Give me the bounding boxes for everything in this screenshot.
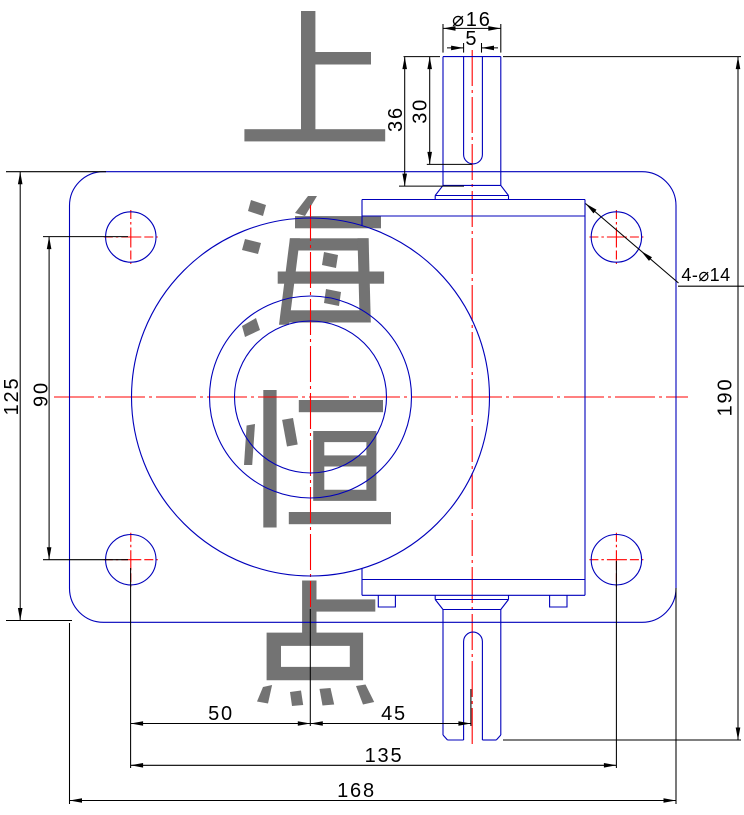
svg-text:4-⌀14: 4-⌀14 [681, 265, 730, 285]
svg-text:50: 50 [208, 703, 234, 725]
svg-text:30: 30 [410, 98, 432, 124]
svg-text:45: 45 [381, 703, 407, 725]
svg-text:168: 168 [337, 780, 376, 802]
svg-text:135: 135 [365, 745, 404, 767]
svg-text:125: 125 [1, 377, 23, 416]
svg-text:190: 190 [715, 378, 737, 417]
svg-text:90: 90 [31, 381, 53, 407]
svg-text:36: 36 [385, 106, 407, 132]
svg-text:5: 5 [465, 28, 478, 50]
